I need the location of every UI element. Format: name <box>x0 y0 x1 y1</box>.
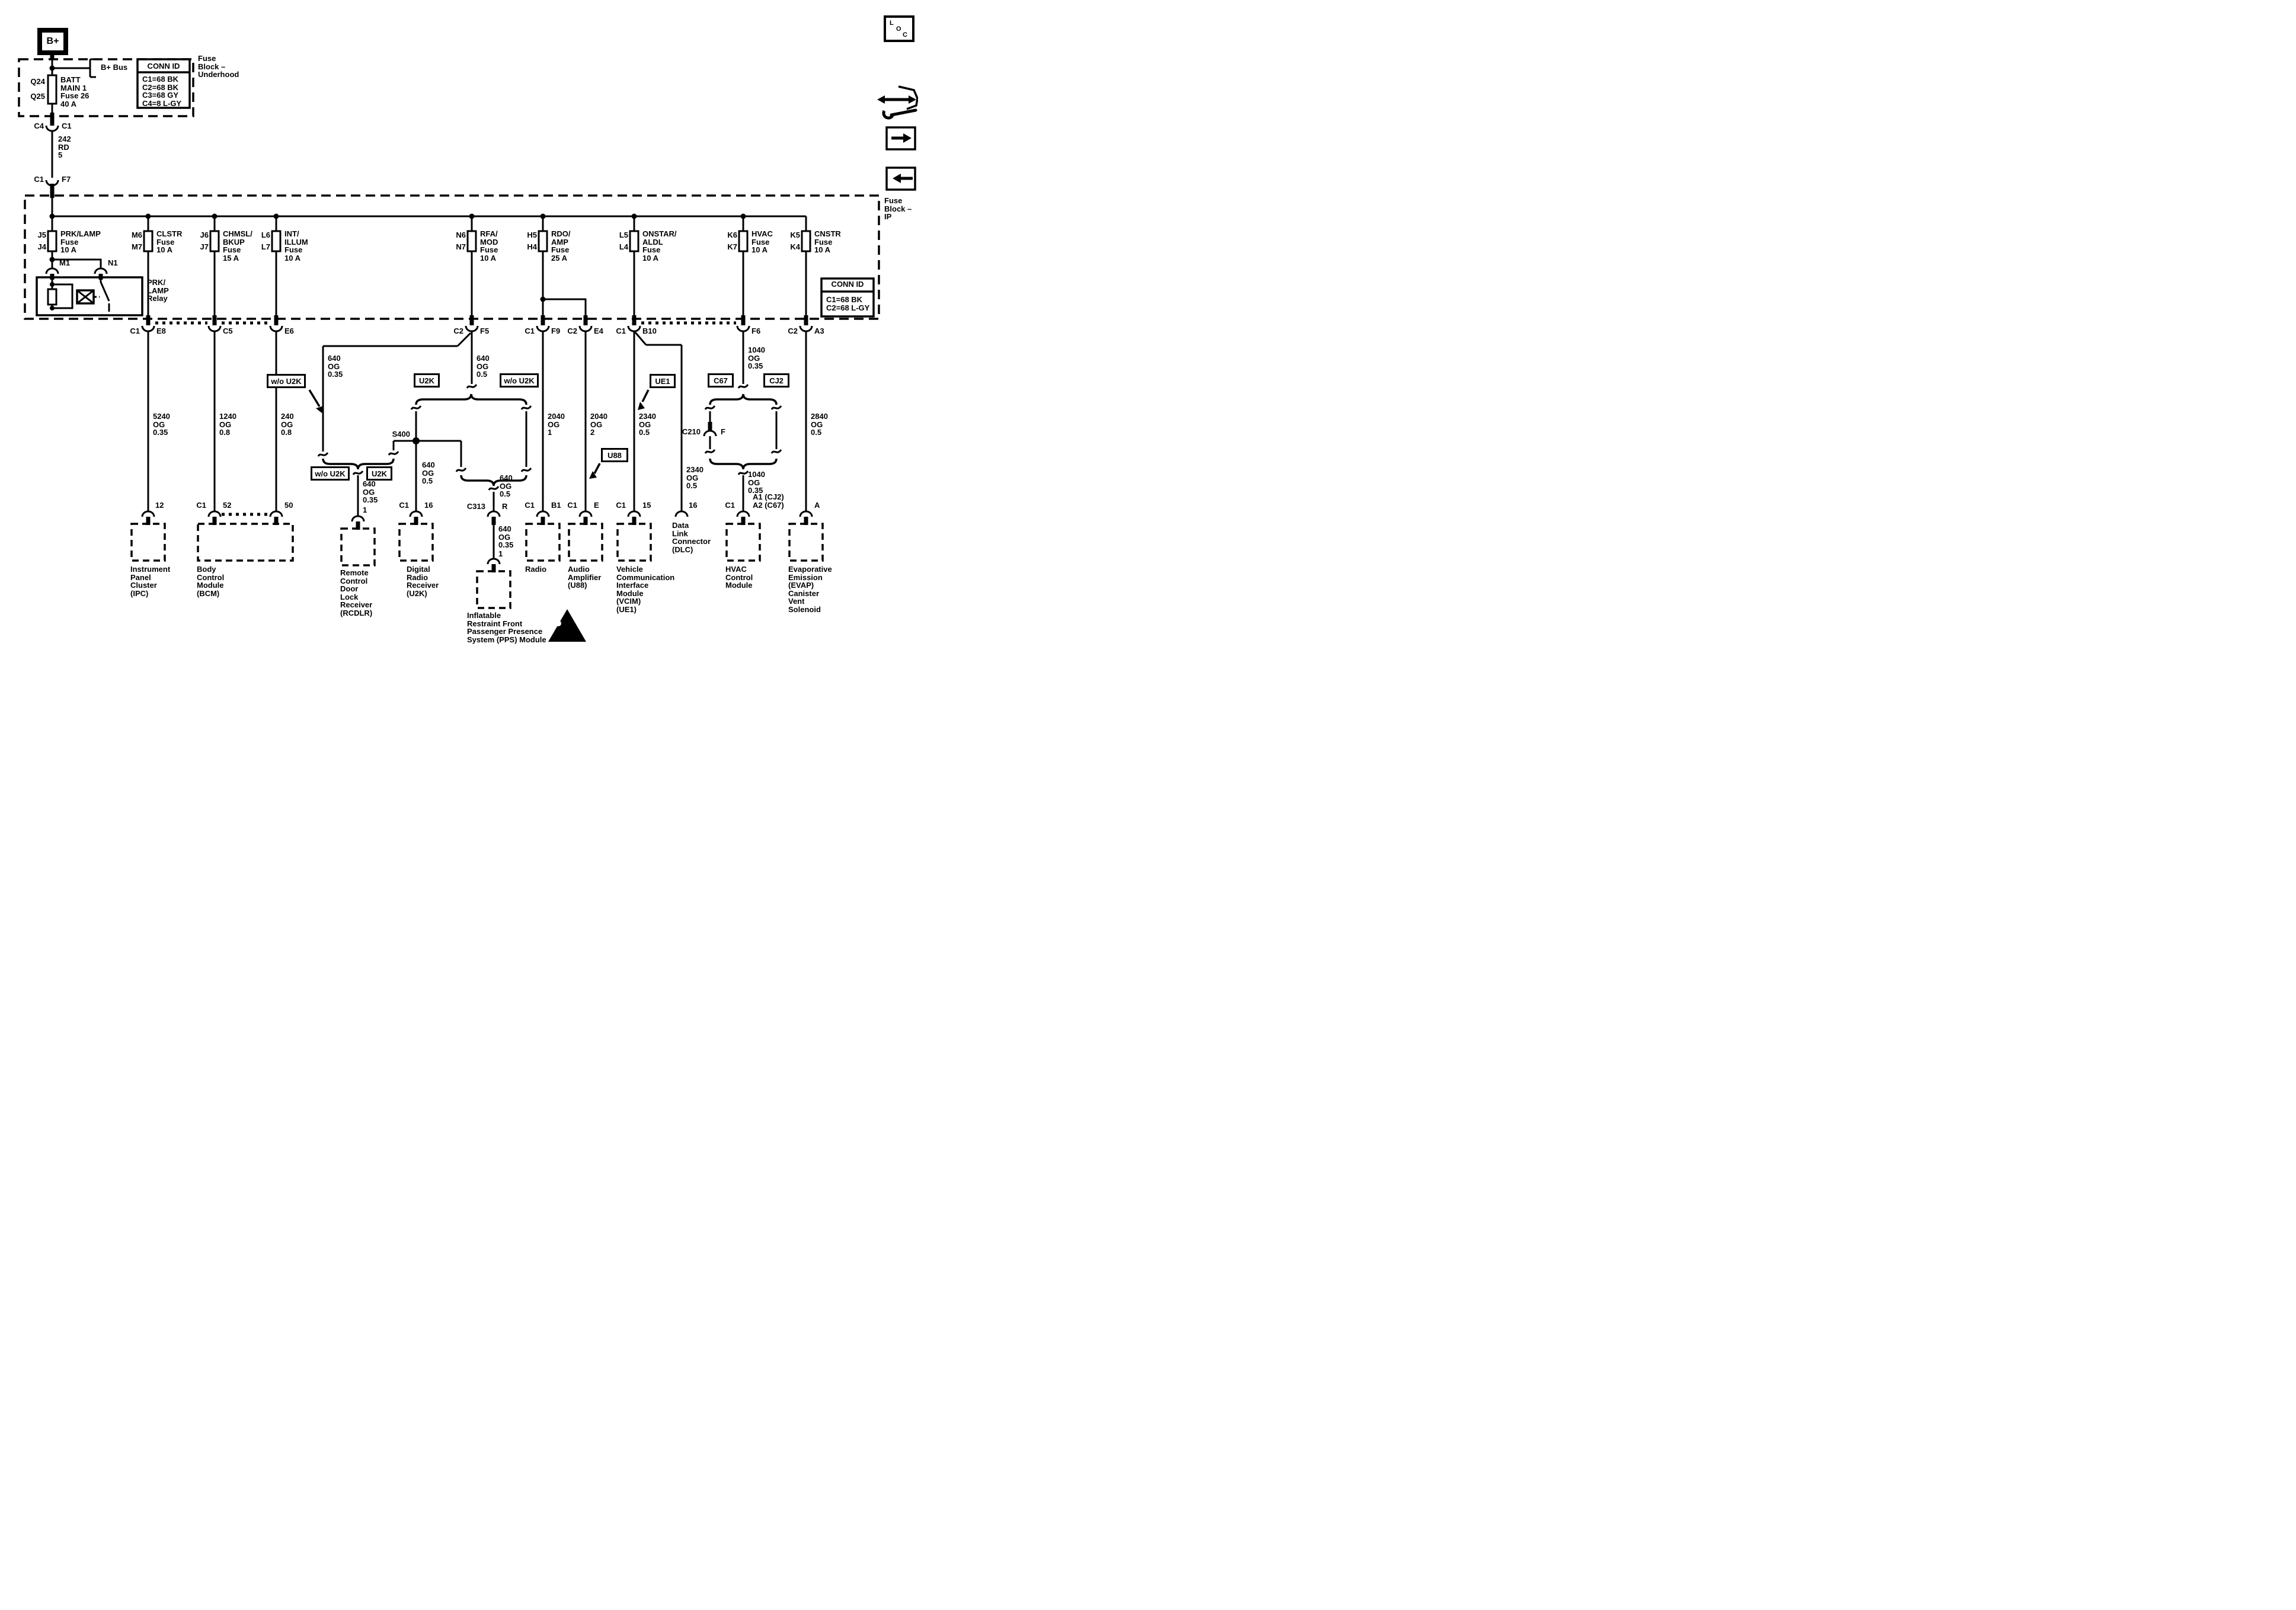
relay-label: PRK/ LAMP Relay <box>147 279 169 303</box>
fuse-prk-name: PRK/LAMP Fuse 10 A <box>60 230 101 254</box>
conn-f9-left: C1 <box>525 327 535 335</box>
fuse-int-pos-top: L6 <box>261 231 270 239</box>
pin-bcm-52: 52 <box>223 501 231 510</box>
wire-label-pps-lower: 640 OG 0.35 <box>498 525 513 549</box>
conn-c1-bottom-label: C1 <box>34 175 44 184</box>
fuse-onstar-name: ONSTAR/ ALDL Fuse 10 A <box>642 230 677 262</box>
option-box-c67: C67 <box>708 373 734 388</box>
conn-c313-cavity: R <box>502 502 507 511</box>
loc-letter-o: O <box>896 25 901 33</box>
wire-label-hvac-lower: 1040 OG 0.35 <box>748 470 765 495</box>
underhood-conn-id-rows: C1=68 BK C2=68 BK C3=68 GY C4=8 L-GY <box>142 75 181 107</box>
wire-label-f5-branch: 640 OG 0.35 <box>328 354 343 379</box>
module-vcim: Vehicle Communication Interface Module (… <box>616 565 674 613</box>
pin-amp-conn: C1 <box>567 501 577 510</box>
pin-radio-conn: C1 <box>525 501 535 510</box>
pin-vcim-conn: C1 <box>616 501 626 510</box>
fuse-chmsl-pos-top: J6 <box>200 231 209 239</box>
underhood-fuse-pos-top: Q24 <box>30 78 45 86</box>
fuse-cnstr-name: CNSTR Fuse 10 A <box>814 230 841 254</box>
pin-evap: A <box>814 501 820 510</box>
tools-icon[interactable] <box>877 87 917 118</box>
wire-label-evap: 2840 OG 0.5 <box>811 412 828 437</box>
underhood-fuse-pos-bottom: Q25 <box>30 92 45 101</box>
splice-s400-label: S400 <box>392 430 410 438</box>
option-box-u88: U88 <box>601 448 628 462</box>
feed-wire-label: 242 RD 5 <box>58 135 71 159</box>
wiring-diagram: B+ B+ Bus Q24 Q25 BATT MAIN 1 Fuse 26 40… <box>0 0 918 646</box>
conn-a3-left: C2 <box>788 327 798 335</box>
connector-stubs <box>52 51 806 572</box>
wire-label-rcdlr: 640 OG 0.35 <box>363 480 378 504</box>
fuse-rdo-name: RDO/ AMP Fuse 25 A <box>551 230 571 262</box>
conn-e6: E6 <box>284 327 294 335</box>
fuse-onstar-pos-top: L5 <box>619 231 628 239</box>
conn-b10-right: B10 <box>642 327 657 335</box>
nav-next-icon[interactable] <box>887 127 915 149</box>
pin-hvac-conn: C1 <box>725 501 735 510</box>
diagram-linework <box>0 0 918 646</box>
fuse-rfa-pos-bottom: N7 <box>456 243 466 251</box>
fuse-chmsl-pos-bottom: J7 <box>200 243 209 251</box>
pin-drr: 16 <box>424 501 433 510</box>
b-plus-bus-label: B+ Bus <box>101 63 127 72</box>
splice-s400-dot <box>412 437 420 444</box>
option-box-wo-u2k-bottom: w/o U2K <box>311 466 350 481</box>
wire-label-dlc: 2340 OG 0.5 <box>686 466 703 490</box>
ip-block-label: Fuse Block – IP <box>884 197 912 221</box>
nav-back-icon[interactable] <box>887 168 915 190</box>
fuse-rfa-name: RFA/ MOD Fuse 10 A <box>480 230 498 262</box>
ip-conn-id-header: CONN ID <box>832 280 864 289</box>
module-box-outlines <box>132 524 823 608</box>
pin-bcm-conn: C1 <box>196 501 206 510</box>
option-box-cj2: CJ2 <box>763 373 789 388</box>
module-hvac: HVAC Control Module <box>725 565 753 590</box>
b-plus-terminal-label: B+ <box>47 36 59 47</box>
conn-f5-right: F5 <box>480 327 489 335</box>
conn-e8-left: C1 <box>130 327 140 335</box>
option-box-u2k-mid: U2K <box>414 373 440 388</box>
conn-c5: C5 <box>223 327 233 335</box>
pin-hvac: A1 (CJ2) A2 (C67) <box>753 493 784 509</box>
module-bcm: Body Control Module (BCM) <box>197 565 224 597</box>
option-box-wo-u2k-mid: w/o U2K <box>500 373 539 388</box>
fuse-hvac-name: HVAC Fuse 10 A <box>752 230 773 254</box>
fuse-rdo-pos-bottom: H4 <box>527 243 537 251</box>
fuse-clstr-pos-bottom: M7 <box>132 243 142 251</box>
fuse-prk-pos-top: J5 <box>38 231 46 239</box>
fuse-int-pos-bottom: L7 <box>261 243 270 251</box>
option-box-u2k-bottom: U2K <box>366 466 392 481</box>
wire-label-ipc: 5240 OG 0.35 <box>153 412 170 437</box>
junction-dots <box>50 66 746 445</box>
pin-ipc: 12 <box>155 501 164 510</box>
option-box-ue1: UE1 <box>650 374 676 388</box>
fuse-cnstr-pos-bottom: K4 <box>790 243 800 251</box>
relay-conn-n1: N1 <box>108 259 118 267</box>
conn-e4-left: C2 <box>567 327 577 335</box>
fuse-hvac-pos-top: K6 <box>727 231 737 239</box>
pin-radio: B1 <box>551 501 561 510</box>
conn-f5-left: C2 <box>453 327 463 335</box>
fuse-int-name: INT/ ILLUM Fuse 10 A <box>284 230 308 262</box>
fuse-clstr-name: CLSTR Fuse 10 A <box>156 230 182 254</box>
option-box-wo-u2k-top: w/o U2K <box>267 374 306 388</box>
pin-pps: 1 <box>498 550 503 558</box>
module-evap: Evaporative Emission (EVAP) Canister Ven… <box>788 565 832 613</box>
conn-f6: F6 <box>752 327 760 335</box>
conn-f7-label: F7 <box>62 175 71 184</box>
wire-label-radio: 2040 OG 1 <box>548 412 565 437</box>
fuse-clstr-pos-top: M6 <box>132 231 142 239</box>
relay-conn-m1: M1 <box>59 259 70 267</box>
conn-b10-left: C1 <box>616 327 626 335</box>
module-rcdlr: Remote Control Door Lock Receiver (RCDLR… <box>340 569 372 617</box>
conn-a3-right: A3 <box>814 327 824 335</box>
wire-label-amp: 2040 OG 2 <box>590 412 607 437</box>
fuse-prk-pos-bottom: J4 <box>38 243 46 251</box>
wire-label-pps-upper: 640 OG 0.5 <box>500 474 513 498</box>
module-amp: Audio Amplifier (U88) <box>568 565 601 590</box>
pin-amp: E <box>594 501 599 510</box>
wire-label-drr: 640 OG 0.5 <box>422 461 435 485</box>
ip-conn-id-rows: C1=68 BK C2=68 L-GY <box>826 296 869 312</box>
fuse-rdo-pos-top: H5 <box>527 231 537 239</box>
pin-rcdlr: 1 <box>363 506 367 514</box>
conn-c210-cavity: F <box>721 428 725 436</box>
fuse-hvac-pos-bottom: K7 <box>727 243 737 251</box>
fuse-symbols <box>48 75 810 305</box>
module-radio: Radio <box>525 565 546 574</box>
conn-c4-label: C4 <box>34 122 44 130</box>
conn-c313-label: C313 <box>467 502 485 511</box>
wire-label-bcm52: 1240 OG 0.8 <box>219 412 236 437</box>
wire-label-vcim: 2340 OG 0.5 <box>639 412 656 437</box>
fuse-chmsl-name: CHMSL/ BKUP Fuse 15 A <box>223 230 252 262</box>
underhood-fuse-name: BATT MAIN 1 Fuse 26 40 A <box>60 76 89 108</box>
module-drr: Digital Radio Receiver (U2K) <box>407 565 439 597</box>
conn-c1-top-label: C1 <box>62 122 72 130</box>
module-pps: Inflatable Restraint Front Passenger Pre… <box>467 612 546 644</box>
fuse-cnstr-pos-top: K5 <box>790 231 800 239</box>
pin-drr-conn: C1 <box>399 501 409 510</box>
conn-c210-label: C210 <box>682 428 701 436</box>
loc-letter-c: C <box>903 31 907 39</box>
conn-e4-right: E4 <box>594 327 603 335</box>
module-ipc: Instrument Panel Cluster (IPC) <box>130 565 170 597</box>
pin-vcim: 15 <box>642 501 651 510</box>
underhood-conn-id-header: CONN ID <box>148 62 180 71</box>
wire-label-f5-main: 640 OG 0.5 <box>477 354 490 379</box>
conn-e8-right: E8 <box>156 327 166 335</box>
pin-bcm-50: 50 <box>284 501 293 510</box>
module-dlc: Data Link Connector (DLC) <box>672 521 711 553</box>
wire-label-bcm50: 240 OG 0.8 <box>281 412 294 437</box>
fuse-rfa-pos-top: N6 <box>456 231 466 239</box>
pps-warning-icon <box>548 609 586 642</box>
fuse-onstar-pos-bottom: L4 <box>619 243 628 251</box>
wire-label-hvac-upper: 1040 OG 0.35 <box>748 346 765 370</box>
underhood-block-label: Fuse Block – Underhood <box>198 55 239 79</box>
conn-f9-right: F9 <box>551 327 560 335</box>
pin-dlc: 16 <box>689 501 697 510</box>
loc-letter-l: L <box>890 20 894 27</box>
